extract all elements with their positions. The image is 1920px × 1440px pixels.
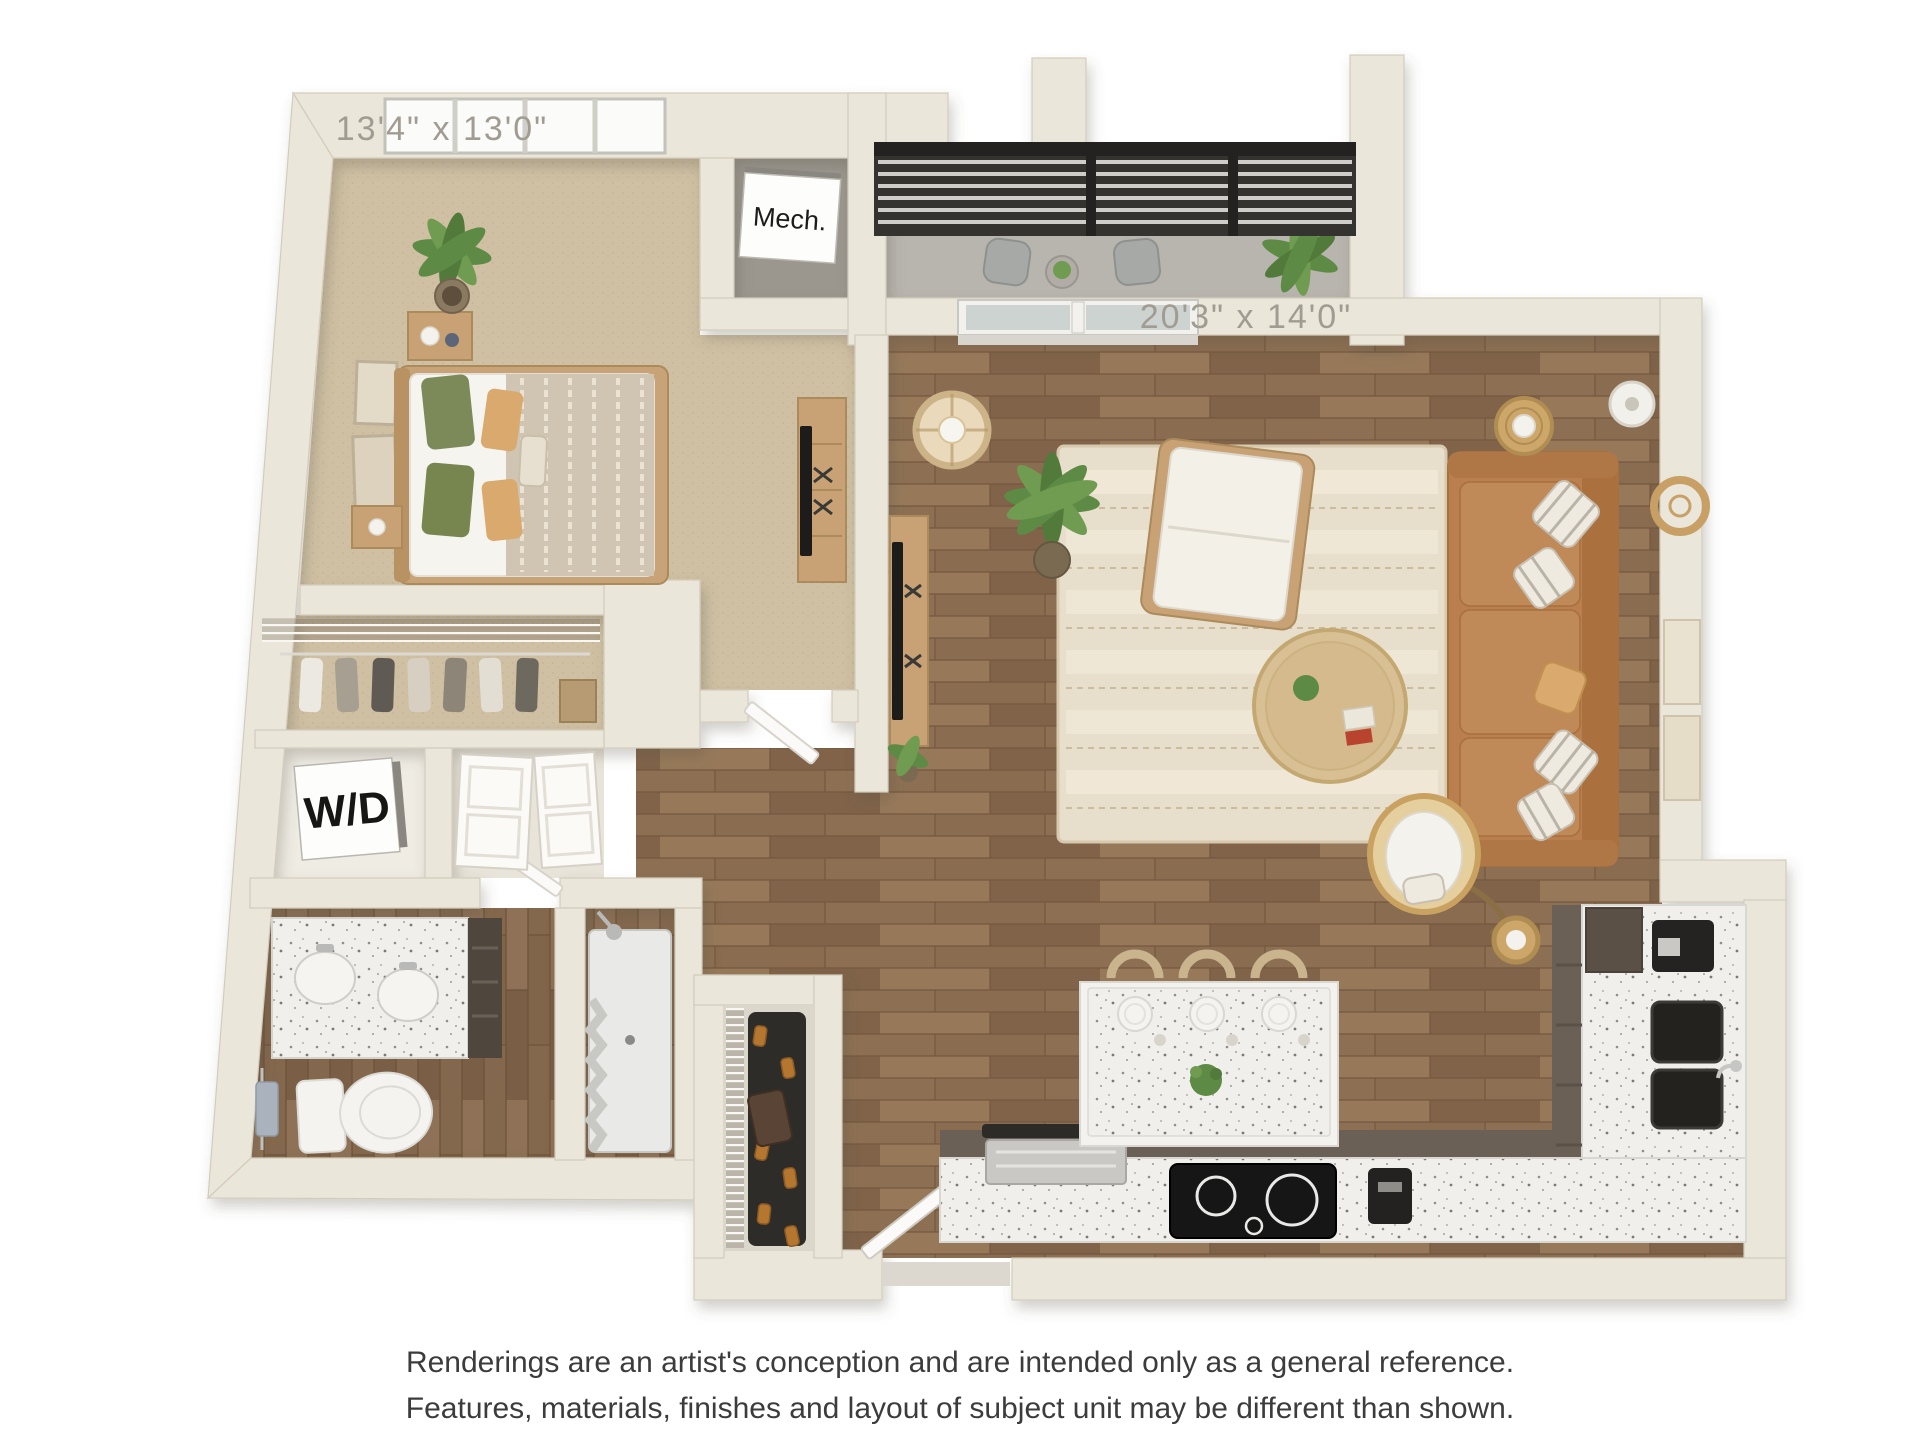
washer-dryer-label: W/D [302, 782, 391, 838]
tall-lamp [1610, 382, 1654, 426]
right-jog-wall [1660, 860, 1786, 902]
balcony-railing [874, 142, 1356, 236]
basket-floor-lamp [1494, 918, 1538, 962]
bathroom-sink [378, 969, 438, 1021]
floor-lamp [916, 394, 988, 466]
armchair [1140, 437, 1316, 631]
picture-frame [353, 435, 398, 510]
coat-closet-right-wall [814, 975, 842, 1258]
table-lamp [1513, 415, 1535, 437]
closet-basket [560, 680, 596, 722]
books [1343, 706, 1375, 730]
vanity-cabinet [468, 918, 502, 1058]
table-plant [1293, 675, 1319, 701]
nook-bottom-wall-b [832, 690, 858, 722]
bathroom-top-wall-a [250, 878, 480, 908]
bedroom-tv [800, 426, 812, 556]
coat-closet-left-wall [694, 975, 724, 1258]
laundry-divider-wall [425, 748, 452, 878]
vanity [272, 918, 502, 1058]
faucet [316, 944, 334, 952]
nook-bottom-wall-a [700, 690, 748, 722]
balcony-table-plant [1053, 261, 1071, 279]
bed [394, 366, 668, 584]
bedroom-living-divider-wall [855, 335, 888, 792]
faucet [399, 962, 417, 970]
mech-closet: Mech. [739, 167, 841, 263]
toilet [296, 1070, 434, 1157]
bed-pillow-green [421, 462, 475, 538]
balcony-chair [982, 237, 1032, 287]
towel [256, 1082, 278, 1136]
coat-closet [724, 1005, 814, 1250]
wire-shelf [262, 618, 600, 642]
kitchen-bottom-wall-right [1012, 1258, 1786, 1300]
entry-threshold [882, 1262, 1010, 1286]
bathroom-top-wall-b [560, 878, 702, 908]
wire-shelf [726, 1008, 744, 1248]
wall-art-frame [1664, 620, 1700, 704]
bed-pillow-tan [481, 478, 523, 541]
floor-plan-page: Mech. [0, 0, 1920, 1440]
mech-label: Mech. [752, 201, 827, 236]
disclaimer-line-1: Renderings are an artist's conception an… [406, 1346, 1514, 1379]
nightstand [408, 312, 472, 360]
coat-closet-top-wall [694, 975, 814, 1005]
hall-opening-floor [855, 790, 890, 908]
balcony-chair [1113, 238, 1161, 286]
cooktop [1170, 1164, 1336, 1238]
coffee-table [1254, 630, 1406, 782]
dimension-label-bedroom: 13'4" x 13'0" [336, 110, 548, 148]
hall-closet-doors [455, 752, 602, 870]
floor-plan-rendering: Mech. [0, 0, 1920, 1440]
hall-wall-chunk [604, 580, 700, 748]
kitchen-tall-cabinet [1586, 908, 1642, 972]
laundry-closet: W/D [294, 757, 408, 860]
bed-pillow-green [420, 374, 475, 451]
living-tv [892, 542, 903, 720]
shower-left-wall [555, 908, 585, 1160]
tv-console [890, 516, 928, 746]
disclaimer-line-2: Features, materials, finishes and layout… [406, 1392, 1514, 1425]
bed-pillow-accent [519, 435, 548, 486]
side-table [1496, 398, 1552, 454]
kitchen-island [1080, 954, 1338, 1146]
picture-frame [355, 361, 397, 424]
chair-pillow [1402, 873, 1446, 906]
island-plant [1190, 1064, 1222, 1096]
shower-drain [625, 1035, 635, 1045]
wall-art-frame [1664, 716, 1700, 800]
small-appliance [1368, 1168, 1412, 1224]
mech-bottom-wall [700, 298, 850, 330]
bathroom-bottom-wall [208, 1158, 700, 1200]
dimension-label-living: 20'3" x 14'0" [1140, 298, 1352, 336]
bathroom-sink [295, 952, 355, 1004]
nightstand [352, 506, 402, 548]
shower [589, 912, 671, 1152]
walkin-closet-bottom-wall [255, 730, 604, 748]
sofa [1448, 452, 1618, 866]
kitchen-right-wall [1744, 900, 1786, 1300]
bedroom-tv-dresser [798, 398, 846, 582]
